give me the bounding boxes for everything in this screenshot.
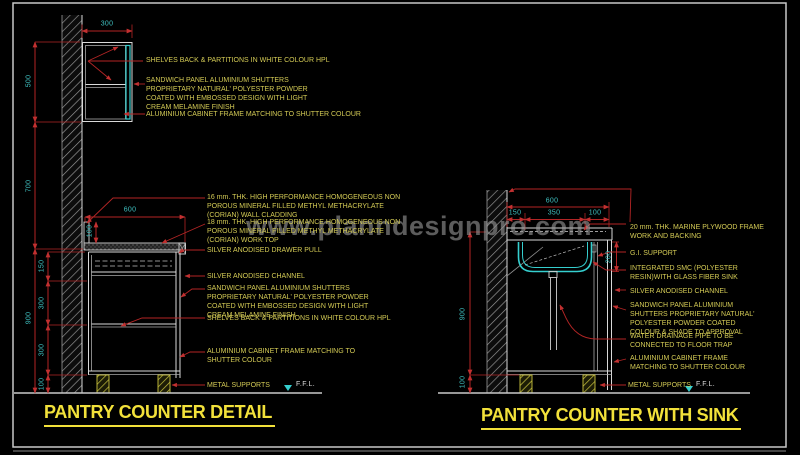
left-metal-supports	[97, 375, 170, 393]
dim-right-total-height: 900	[460, 308, 467, 321]
dim-left-top-width: 300	[101, 21, 114, 28]
ffl-label-left: F.F.L.	[296, 381, 315, 388]
dim-right-seg-mid: 350	[548, 210, 561, 217]
annotation-drawer-pull: SILVER ANODISED DRAWER PULL	[207, 246, 407, 255]
left-wall-section	[62, 15, 82, 393]
annotation-marine-plywood: 20 mm. THK. MARINE PLYWOOD FRAME WORK AN…	[630, 223, 765, 241]
annotation-lower-shelves: SHELVES BACK & PARTITIONS IN WHITE COLOU…	[207, 314, 452, 323]
annotation-lower-frame: ALUMINIUM CABINET FRAME MATCHING TO SHUT…	[207, 347, 375, 365]
left-countertop	[84, 222, 186, 254]
annotation-channel-right: SILVER ANODISED CHANNEL	[630, 287, 765, 296]
left-base-cabinet	[89, 252, 181, 378]
dim-left-plinth: 100	[39, 378, 46, 391]
dim-left-depth: 600	[124, 207, 137, 214]
annotation-drainage-pipe: WATER DRAINAGE PIPE TO BE CONNECTED TO F…	[630, 332, 765, 350]
right-detail-title: PANTRY COUNTER WITH SINK	[481, 405, 741, 430]
ffl-label-right: F.F.L.	[696, 381, 715, 388]
annotation-corian-worktop: 18 mm. THK. HIGH PERFORMANCE HOMOGENEOUS…	[207, 218, 402, 245]
annotation-upper-shelves: SHELVES BACK & PARTITIONS IN WHITE COLOU…	[146, 56, 386, 65]
annotation-corian-cladding: 16 mm. THK. HIGH PERFORMANCE HOMOGENEOUS…	[207, 193, 402, 220]
annotation-frame-right: ALUMINIUM CABINET FRAME MATCHING TO SHUT…	[630, 354, 765, 372]
dim-left-shelf-upper: 300	[39, 297, 46, 310]
annotation-smc-sink: INTEGRATED SMC (POLYESTER RESIN)WITH GLA…	[630, 264, 765, 282]
dim-left-drawer: 150	[39, 260, 46, 273]
dim-right-sink-depth: 200	[606, 251, 613, 264]
dim-right-total: 600	[546, 198, 559, 205]
annotation-metal-supports-right: METAL SUPPORTS	[628, 381, 748, 390]
left-detail-title: PANTRY COUNTER DETAIL	[44, 402, 275, 427]
dim-right-plinth: 100	[460, 376, 467, 389]
dim-left-total-height: 900	[26, 312, 33, 325]
annotation-upper-frame: ALUMINIUM CABINET FRAME MATCHING TO SHUT…	[146, 110, 396, 119]
annotation-channel-left: SILVER ANODISED CHANNEL	[207, 272, 407, 281]
dim-left-shelf-lower: 300	[39, 344, 46, 357]
dim-left-upper-height: 500	[26, 75, 33, 88]
drain-pipe	[549, 272, 557, 351]
annotation-upper-shutters: SANDWICH PANEL ALUMINIUM SHUTTERS PROPRI…	[146, 76, 326, 112]
dim-left-wall-gap: 700	[26, 180, 33, 193]
annotation-gi-support: G.I. SUPPORT	[630, 249, 765, 258]
dim-right-seg-left: 150	[509, 210, 522, 217]
dim-left-cladding: 100	[87, 225, 94, 238]
cad-sheet: www.planndesignpro.com 300 500 700 900 6…	[0, 0, 800, 455]
left-upper-cabinet	[83, 43, 133, 122]
sink	[519, 242, 592, 272]
right-metal-supports	[520, 375, 595, 393]
dim-right-seg-right: 100	[589, 210, 602, 217]
